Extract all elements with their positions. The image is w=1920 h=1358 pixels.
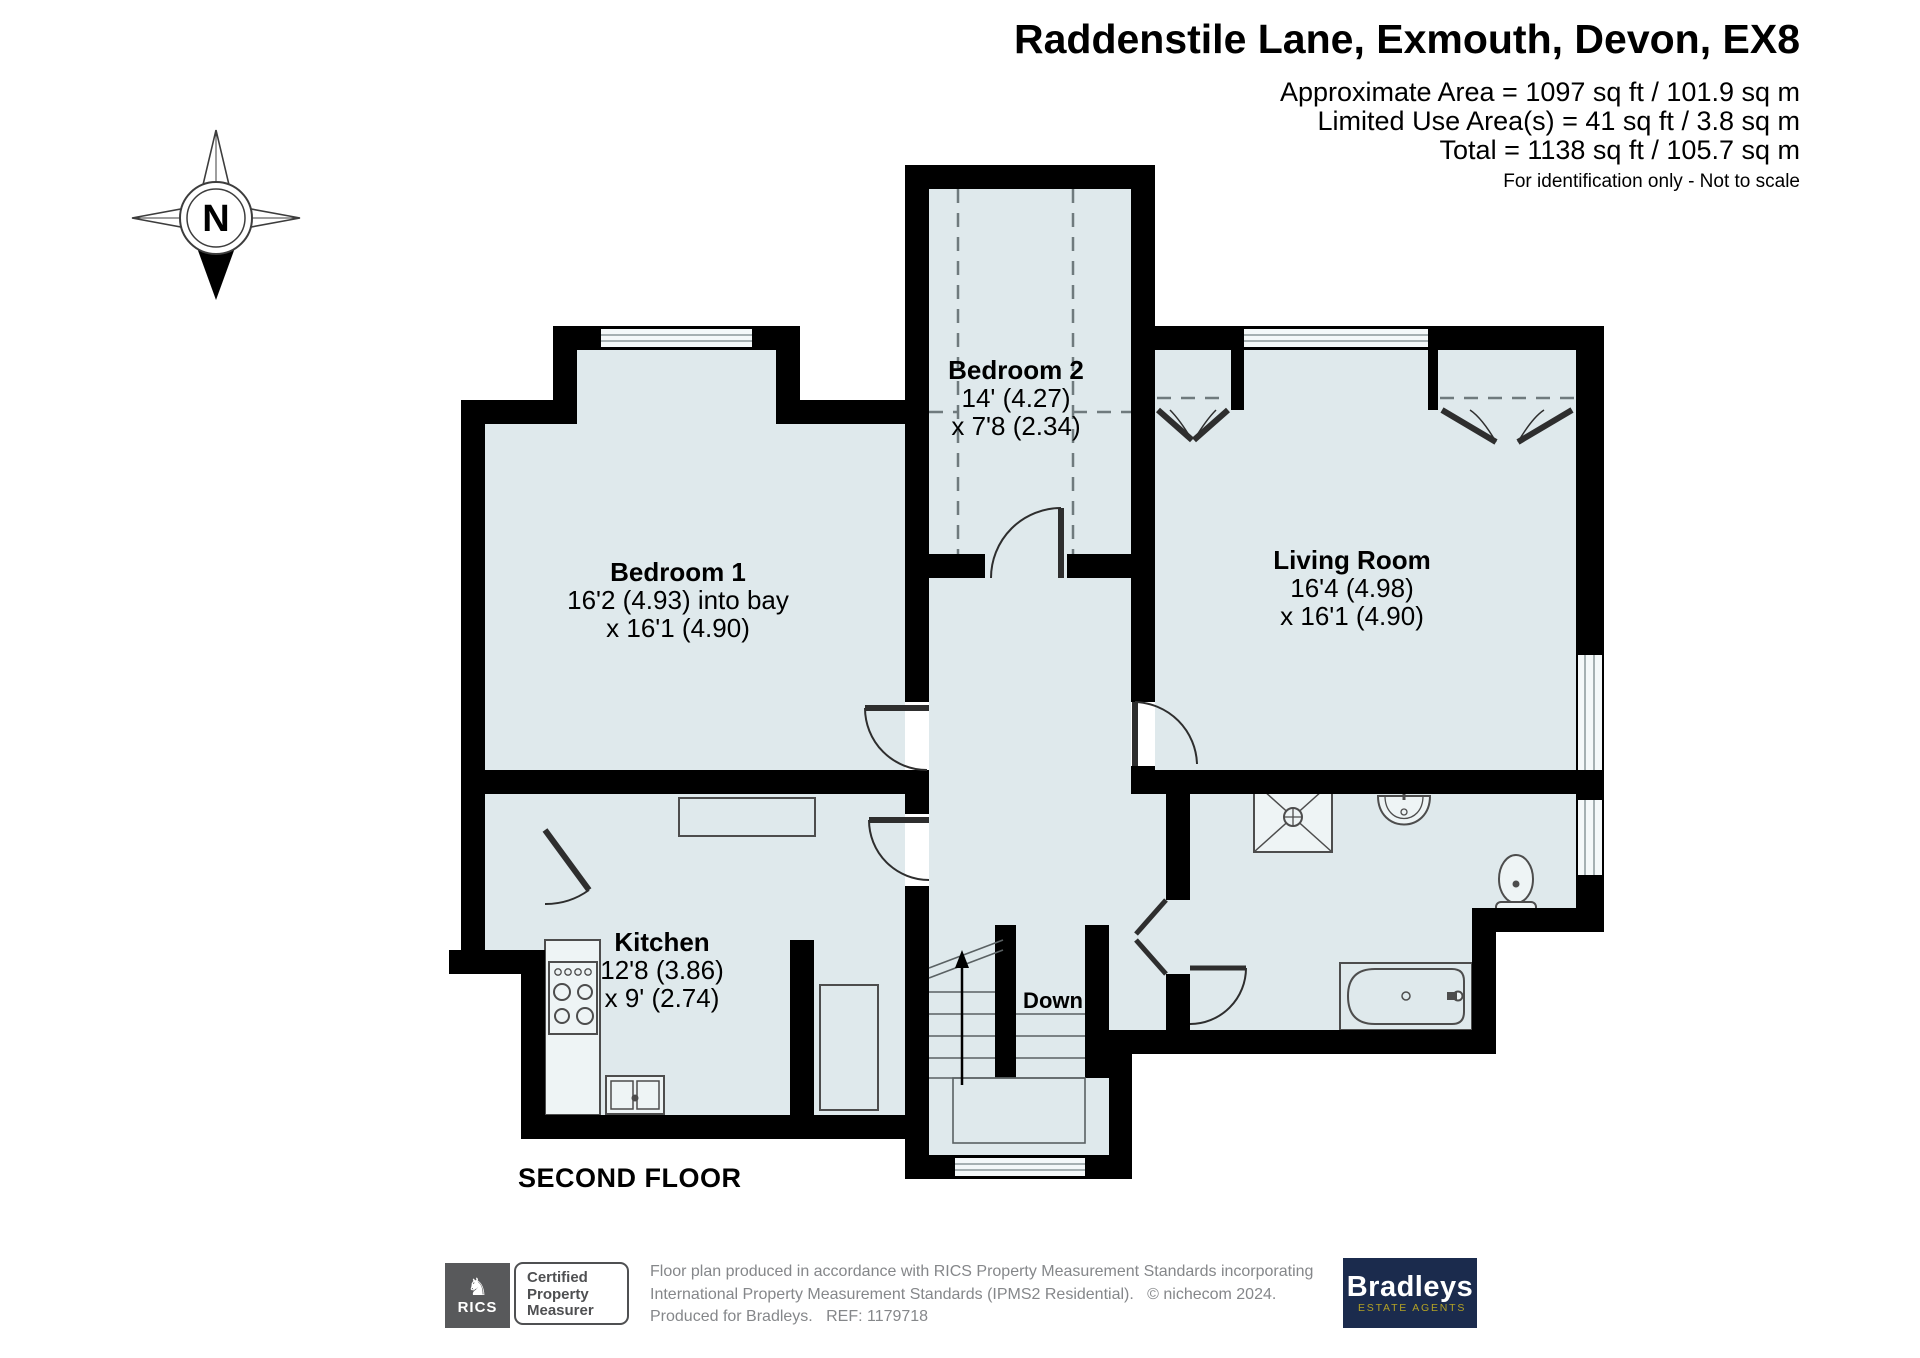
rics-logo: ♞ RICS bbox=[445, 1263, 510, 1328]
stairs-down-label: Down bbox=[1023, 988, 1083, 1014]
cpm-line-1: Certified bbox=[527, 1270, 627, 1287]
kitchen-sink-icon bbox=[606, 1076, 664, 1114]
living-room-label: Living Room 16'4 (4.98) x 16'1 (4.90) bbox=[1273, 546, 1430, 630]
living-room-name: Living Room bbox=[1273, 546, 1430, 574]
page-title: Raddenstile Lane, Exmouth, Devon, EX8 bbox=[1014, 16, 1800, 62]
bedroom2-label: Bedroom 2 14' (4.27) x 7'8 (2.34) bbox=[948, 356, 1084, 440]
stairs-window bbox=[955, 1158, 1085, 1176]
certified-property-measurer-badge: Certified Property Measurer bbox=[514, 1262, 629, 1325]
approximate-area: Approximate Area = 1097 sq ft / 101.9 sq… bbox=[1014, 78, 1800, 107]
bedroom1-dim-1: 16'2 (4.93) into bay bbox=[567, 586, 789, 614]
bedroom1-dim-2: x 16'1 (4.90) bbox=[567, 614, 789, 642]
living-top-window bbox=[1244, 329, 1428, 347]
total-area: Total = 1138 sq ft / 105.7 sq m bbox=[1014, 136, 1800, 165]
rics-brand: RICS bbox=[458, 1300, 498, 1316]
cpm-line-2: Property bbox=[527, 1287, 627, 1304]
rics-lion-icon: ♞ bbox=[467, 1276, 489, 1300]
toilet-icon bbox=[1496, 855, 1536, 915]
floorplan-drawing bbox=[0, 0, 1920, 1358]
disclaimer-line-1: Floor plan produced in accordance with R… bbox=[650, 1261, 1313, 1284]
bedroom2-dim-2: x 7'8 (2.34) bbox=[948, 412, 1084, 440]
kitchen-dim-1: 12'8 (3.86) bbox=[600, 956, 724, 984]
disclaimer-line-3: Produced for Bradleys. REF: 1179718 bbox=[650, 1306, 1313, 1329]
living-side-window bbox=[1578, 655, 1602, 770]
identification-note: For identification only - Not to scale bbox=[1014, 170, 1800, 194]
kitchen-name: Kitchen bbox=[600, 928, 724, 956]
agent-tagline: ESTATE AGENTS bbox=[1358, 1302, 1466, 1314]
floor-name-label: SECOND FLOOR bbox=[518, 1163, 742, 1194]
bedroom1-name: Bedroom 1 bbox=[567, 558, 789, 586]
header: Raddenstile Lane, Exmouth, Devon, EX8 Ap… bbox=[1014, 16, 1800, 194]
living-room-dim-1: 16'4 (4.98) bbox=[1273, 574, 1430, 602]
bedroom2-name: Bedroom 2 bbox=[948, 356, 1084, 384]
kitchen-label: Kitchen 12'8 (3.86) x 9' (2.74) bbox=[600, 928, 724, 1012]
bedroom1-label: Bedroom 1 16'2 (4.93) into bay x 16'1 (4… bbox=[567, 558, 789, 642]
kitchen-dim-2: x 9' (2.74) bbox=[600, 984, 724, 1012]
cpm-line-3: Measurer bbox=[527, 1303, 627, 1320]
oven-hob-icon bbox=[549, 962, 597, 1034]
limited-use-area: Limited Use Area(s) = 41 sq ft / 3.8 sq … bbox=[1014, 107, 1800, 136]
compass-north-label: N bbox=[202, 198, 229, 241]
agent-name: Bradleys bbox=[1347, 1272, 1474, 1302]
bedroom2-dim-1: 14' (4.27) bbox=[948, 384, 1084, 412]
bathroom-side-window bbox=[1578, 800, 1602, 875]
living-room-dim-2: x 16'1 (4.90) bbox=[1273, 602, 1430, 630]
disclaimer: Floor plan produced in accordance with R… bbox=[650, 1261, 1313, 1329]
floorplan-page: N Raddenstile Lane, Exmouth, Devon, EX8 … bbox=[0, 0, 1920, 1358]
disclaimer-line-2: International Property Measurement Stand… bbox=[650, 1284, 1313, 1307]
bay-window bbox=[601, 329, 752, 347]
bradleys-logo: Bradleys ESTATE AGENTS bbox=[1343, 1258, 1477, 1328]
compass-n: N bbox=[202, 198, 229, 241]
